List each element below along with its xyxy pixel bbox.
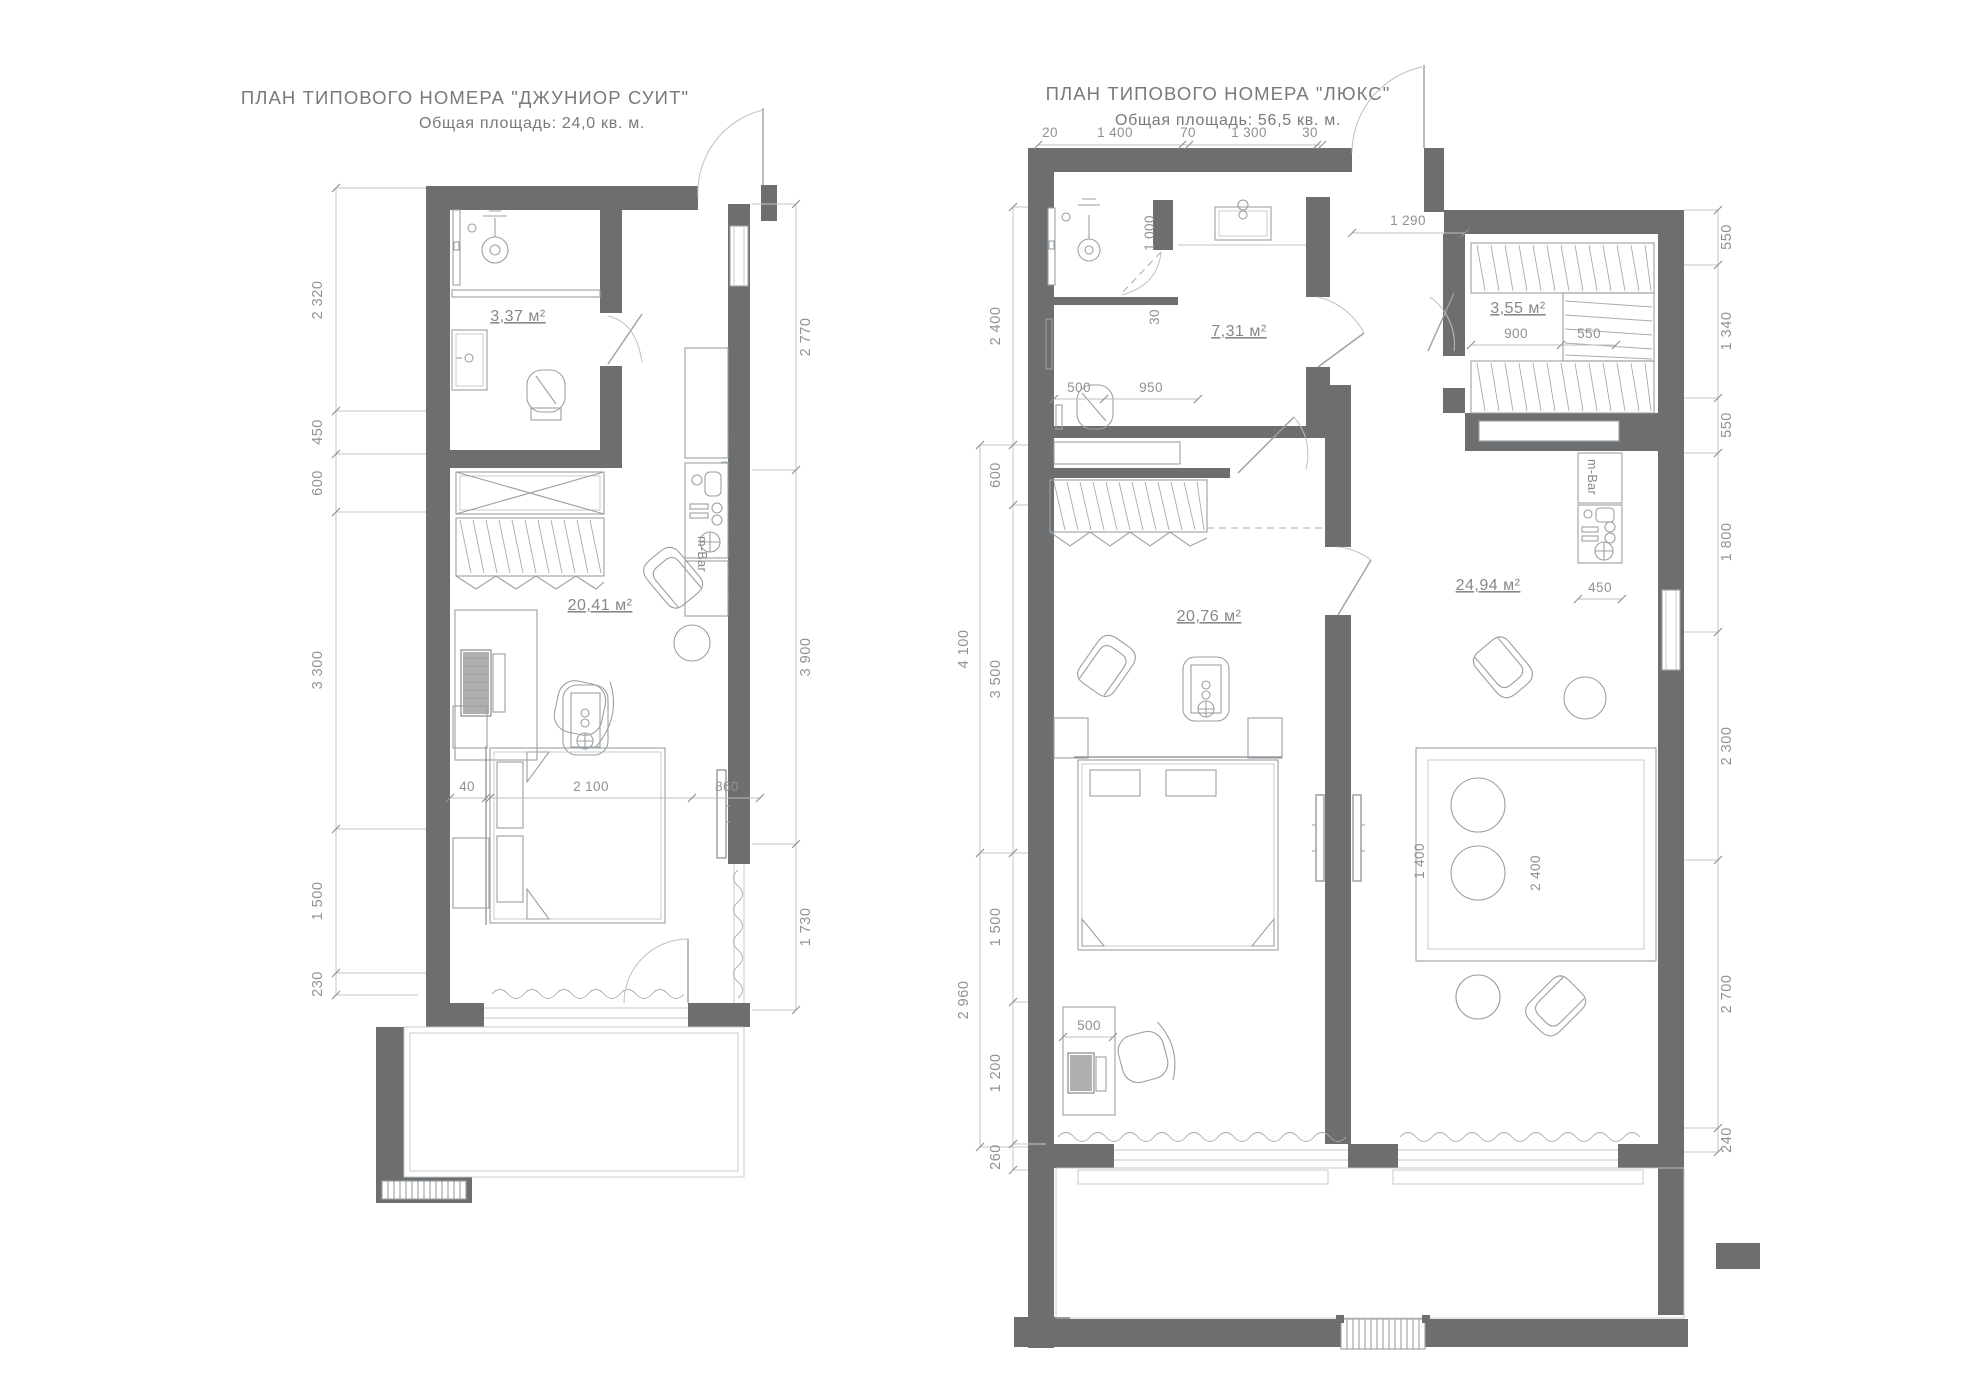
toilet-dimension: 500 950 [1050, 380, 1202, 403]
shower-door [1120, 252, 1161, 295]
svg-text:550: 550 [1719, 224, 1735, 250]
svg-text:2 320: 2 320 [310, 281, 326, 320]
dresser [453, 838, 489, 908]
nightstand [1054, 718, 1088, 758]
balcony [382, 1027, 744, 1199]
living-door [1338, 547, 1371, 615]
svg-text:450: 450 [310, 419, 326, 445]
svg-text:450: 450 [1588, 580, 1612, 595]
svg-text:600: 600 [310, 470, 326, 496]
tray-table [1183, 657, 1229, 721]
dimensions-right: 550 1 340 550 1 800 2 300 2 700 240 [1684, 206, 1735, 1156]
svg-text:70: 70 [1180, 125, 1196, 140]
svg-text:260: 260 [988, 1144, 1004, 1170]
svg-text:1 500: 1 500 [988, 908, 1004, 947]
luggage-rack [456, 472, 604, 514]
minibar-label: m-Bar [1585, 459, 1599, 495]
walls [376, 185, 777, 1203]
minibar-label: m-Bar [695, 536, 709, 572]
svg-text:500: 500 [1067, 380, 1091, 395]
svg-text:4 100: 4 100 [956, 630, 972, 669]
armchair [1074, 631, 1141, 701]
svg-text:2 100: 2 100 [573, 779, 609, 794]
drawing-sheet: ПЛАН ТИПОВОГО НОМЕРА "ДЖУНИОР СУИТ" Обща… [0, 0, 1980, 1400]
plan-title: ПЛАН ТИПОВОГО НОМЕРА "ЛЮКС" [1046, 83, 1391, 104]
svg-text:240: 240 [1719, 1127, 1735, 1153]
dim-label: 1 400 [1412, 843, 1427, 879]
svg-text:1 730: 1 730 [798, 908, 814, 947]
wall-niche [1479, 421, 1619, 441]
svg-text:1 500: 1 500 [310, 882, 326, 921]
bedroom-wardrobe [1050, 480, 1207, 546]
desk [455, 610, 537, 760]
armchair [1469, 633, 1537, 703]
svg-text:950: 950 [1139, 380, 1163, 395]
bathroom-door [1318, 297, 1364, 367]
area-label-bath: 7,31 м² [1211, 323, 1267, 340]
armchair [1521, 972, 1590, 1041]
svg-text:550: 550 [1577, 326, 1601, 341]
living-room: 24,94 м² m-Bar 450 [1338, 453, 1656, 1041]
svg-text:2 700: 2 700 [1719, 975, 1735, 1014]
desk-dimension: 500 [1059, 1018, 1117, 1041]
svg-text:20: 20 [1042, 125, 1058, 140]
sink-icon [1178, 200, 1306, 245]
svg-text:30: 30 [1302, 125, 1318, 140]
svg-text:230: 230 [310, 971, 326, 997]
svg-text:2 770: 2 770 [798, 318, 814, 357]
tray-table [563, 685, 608, 755]
bedroom-door [1238, 417, 1308, 473]
bathroom: 3,37 м² [452, 210, 600, 420]
entrance-door [1352, 65, 1424, 153]
desk-chair [1113, 1020, 1181, 1092]
svg-text:1 400: 1 400 [1097, 125, 1133, 140]
nightstand [1248, 718, 1282, 758]
svg-text:3 300: 3 300 [310, 651, 326, 690]
bed [486, 746, 665, 925]
area-label-bath: 3,37 м² [490, 308, 546, 325]
wall-window-right [1662, 590, 1680, 670]
dimensions-right: 2 770 3 900 1 730 [752, 200, 814, 1014]
area-label-room: 20,41 м² [568, 597, 633, 614]
dimensions-left: 2 320 450 600 3 300 1 500 230 [310, 184, 426, 999]
dim-label: 2 400 [1528, 855, 1543, 891]
svg-text:500: 500 [1077, 1018, 1101, 1033]
area-label-bedroom: 20,76 м² [1177, 608, 1242, 625]
pouf [1456, 975, 1500, 1019]
wall-window [730, 226, 748, 286]
wardrobe [456, 518, 604, 589]
toilet-icon [527, 370, 565, 420]
floor-plan-junior-suite: ПЛАН ТИПОВОГО НОМЕРА "ДЖУНИОР СУИТ" Обща… [240, 58, 820, 1248]
svg-text:3 900: 3 900 [798, 638, 814, 677]
bedroom: 20,76 м² [1050, 417, 1325, 1115]
area-label-wardrobe: 3,55 м² [1490, 300, 1546, 317]
plan-title: ПЛАН ТИПОВОГО НОМЕРА "ДЖУНИОР СУИТ" [241, 87, 689, 108]
area-label-living: 24,94 м² [1456, 577, 1521, 594]
plan-subtitle: Общая площадь: 24,0 кв. м. [419, 115, 645, 132]
wardrobe-room: 3,55 м² 900 550 [1467, 243, 1654, 413]
balcony-door [624, 939, 688, 1003]
svg-text:600: 600 [988, 462, 1004, 488]
svg-text:1 340: 1 340 [1719, 312, 1735, 351]
stool [674, 625, 710, 661]
svg-text:3 500: 3 500 [988, 660, 1004, 699]
vent-grate [1336, 1315, 1430, 1349]
sofa-bed: 1 400 2 400 [1412, 748, 1656, 961]
svg-text:1 300: 1 300 [1231, 125, 1267, 140]
wall-tv [1312, 795, 1324, 881]
svg-text:1 290: 1 290 [1390, 213, 1426, 228]
vent-grate [382, 1181, 466, 1199]
svg-text:550: 550 [1719, 412, 1735, 438]
svg-text:900: 900 [1504, 326, 1528, 341]
svg-text:2 960: 2 960 [956, 981, 972, 1020]
svg-text:1 800: 1 800 [1719, 523, 1735, 562]
dim-label: 1 000 [1142, 215, 1157, 251]
console [1054, 442, 1180, 464]
minibar-dimension: 450 [1574, 580, 1626, 603]
svg-text:40: 40 [459, 779, 475, 794]
svg-text:860: 860 [715, 779, 739, 794]
coffee-table [1564, 677, 1606, 719]
minibar-unit: m-Bar [1578, 453, 1622, 563]
wall-tv [1353, 795, 1365, 881]
svg-text:1 200: 1 200 [988, 1054, 1004, 1093]
bathroom: 1 000 30 500 950 7,31 м² [1046, 199, 1306, 429]
svg-text:2 400: 2 400 [988, 307, 1004, 346]
bed [1074, 757, 1282, 950]
floor-plan-lux: ПЛАН ТИПОВОГО НОМЕРА "ЛЮКС" Общая площад… [928, 55, 1780, 1400]
svg-text:2 300: 2 300 [1719, 727, 1735, 766]
bathroom-door [608, 314, 642, 364]
entrance-door [698, 108, 763, 198]
dim-label: 30 [1147, 309, 1162, 325]
